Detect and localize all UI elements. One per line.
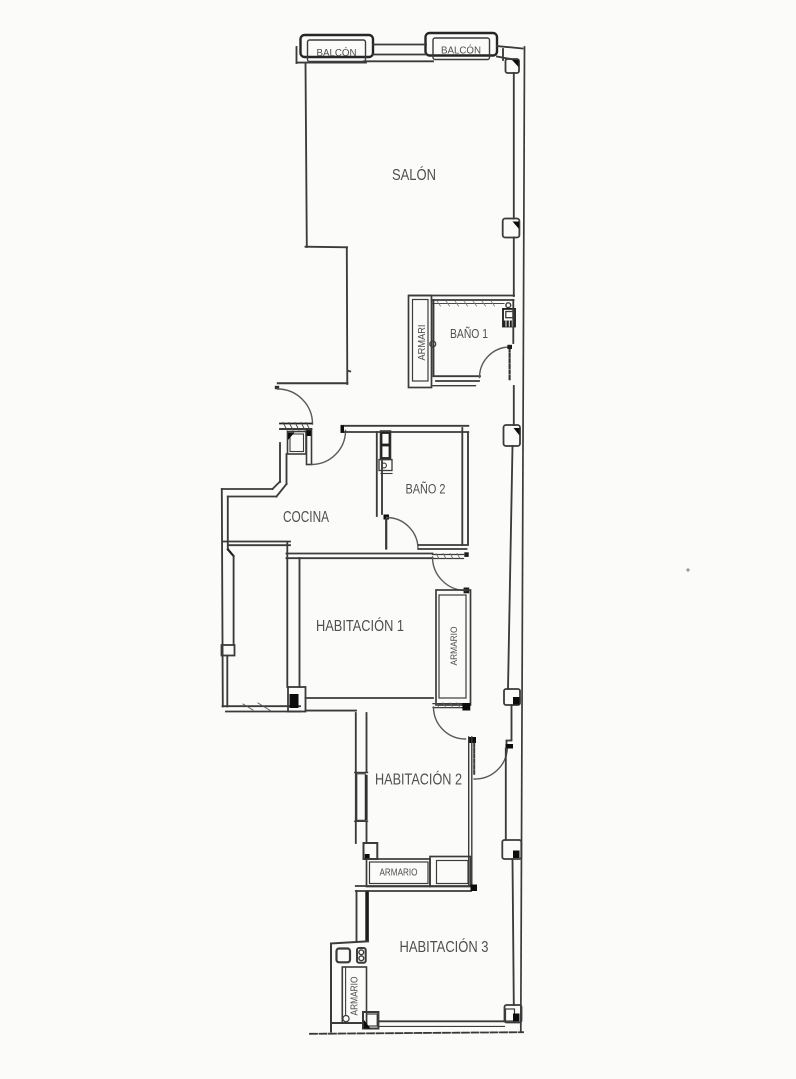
svg-text:ARMARIO: ARMARIO <box>380 868 418 879</box>
svg-text:BAÑO 2: BAÑO 2 <box>406 482 446 497</box>
svg-text:BAÑO 1: BAÑO 1 <box>450 326 488 341</box>
svg-text:COCINA: COCINA <box>283 509 329 526</box>
svg-text:HABITACIÓN 1: HABITACIÓN 1 <box>316 618 404 635</box>
svg-text:ARMARI: ARMARI <box>416 325 428 361</box>
svg-text:SALÓN: SALÓN <box>392 165 436 184</box>
svg-text:BALCÓN: BALCÓN <box>441 44 481 57</box>
svg-text:ARMARIO: ARMARIO <box>449 627 460 666</box>
svg-text:BALCÓN: BALCÓN <box>317 46 357 59</box>
svg-text:ARMARIO: ARMARIO <box>349 977 361 1016</box>
svg-text:HABITACIÓN 2: HABITACIÓN 2 <box>375 772 462 789</box>
svg-text:HABITACIÓN 3: HABITACIÓN 3 <box>400 939 489 956</box>
